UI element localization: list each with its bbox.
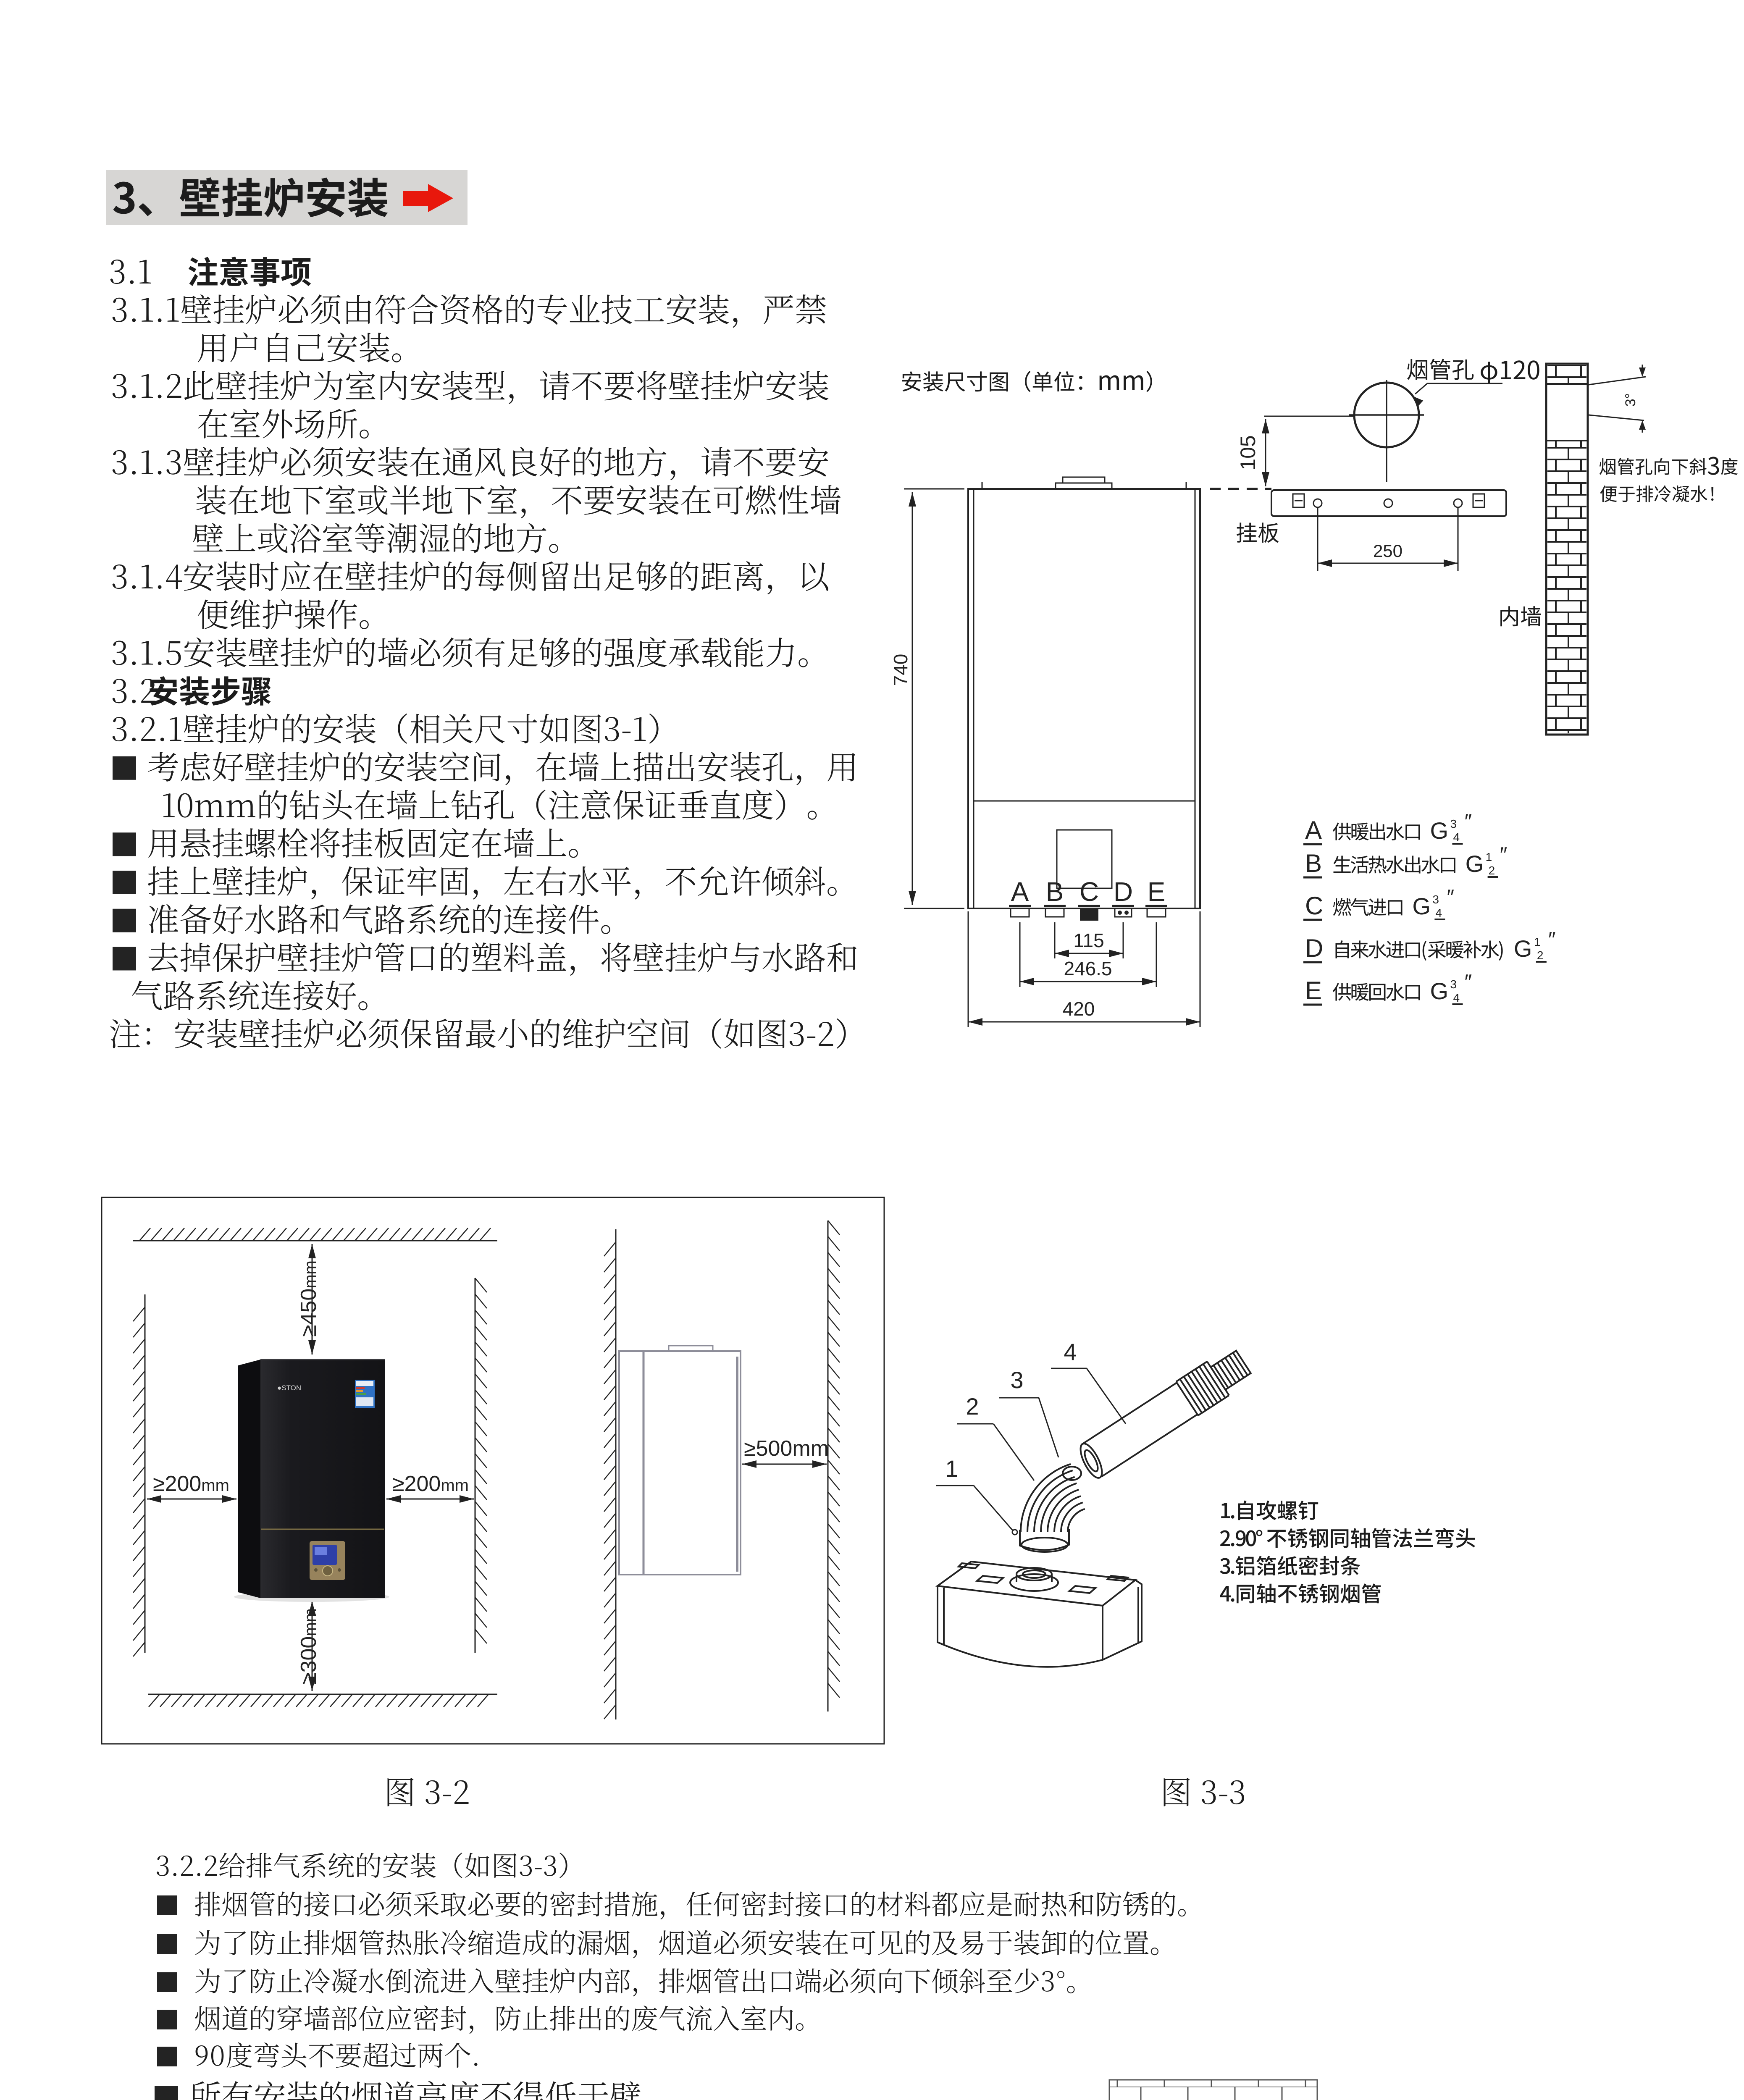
svg-text:2: 2 bbox=[966, 1393, 979, 1420]
svg-text:≥500mm: ≥500mm bbox=[744, 1436, 829, 1461]
svg-text:A: A bbox=[1305, 816, 1322, 844]
svg-text:E: E bbox=[1148, 877, 1166, 907]
svg-text:3: 3 bbox=[1450, 978, 1457, 991]
svg-text:″: ″ bbox=[1548, 928, 1556, 951]
svg-text:1: 1 bbox=[945, 1455, 958, 1482]
svg-text:1: 1 bbox=[1534, 935, 1541, 948]
svg-text:C: C bbox=[1079, 877, 1099, 907]
svg-text:3: 3 bbox=[1450, 817, 1457, 830]
svg-text:3: 3 bbox=[1432, 893, 1439, 906]
svg-text:B: B bbox=[1046, 877, 1064, 907]
svg-text:105: 105 bbox=[1236, 435, 1260, 470]
svg-text:4: 4 bbox=[1064, 1339, 1077, 1365]
svg-text:1: 1 bbox=[1486, 850, 1492, 864]
svg-text:″: ″ bbox=[1464, 970, 1472, 994]
svg-text:A: A bbox=[1011, 877, 1029, 907]
svg-text:3°: 3° bbox=[1623, 393, 1639, 407]
svg-text:3: 3 bbox=[1010, 1367, 1023, 1393]
svg-text:740: 740 bbox=[890, 654, 911, 686]
svg-text:4: 4 bbox=[1435, 906, 1442, 919]
svg-text:G: G bbox=[1430, 978, 1448, 1004]
svg-text:″: ″ bbox=[1464, 810, 1472, 833]
svg-text:G: G bbox=[1514, 935, 1532, 962]
svg-text:″: ″ bbox=[1447, 885, 1454, 909]
svg-text:4: 4 bbox=[1453, 991, 1460, 1004]
svg-text:E: E bbox=[1305, 976, 1322, 1005]
svg-text:C: C bbox=[1305, 892, 1323, 920]
svg-text:D: D bbox=[1305, 934, 1323, 962]
svg-text:G: G bbox=[1430, 817, 1448, 844]
svg-text:●STON: ●STON bbox=[277, 1384, 301, 1392]
svg-text:G: G bbox=[1466, 850, 1484, 877]
svg-text:2: 2 bbox=[1537, 949, 1544, 962]
svg-text:250: 250 bbox=[1373, 541, 1403, 561]
svg-text:4: 4 bbox=[1453, 831, 1460, 844]
svg-text:B: B bbox=[1305, 849, 1322, 877]
svg-text:246.5: 246.5 bbox=[1064, 958, 1112, 979]
svg-text:″: ″ bbox=[1500, 843, 1508, 866]
svg-text:115: 115 bbox=[1073, 929, 1104, 951]
svg-text:G: G bbox=[1412, 893, 1431, 919]
svg-text:420: 420 bbox=[1063, 998, 1095, 1020]
svg-text:2: 2 bbox=[1489, 864, 1495, 877]
svg-text:D: D bbox=[1114, 877, 1133, 907]
